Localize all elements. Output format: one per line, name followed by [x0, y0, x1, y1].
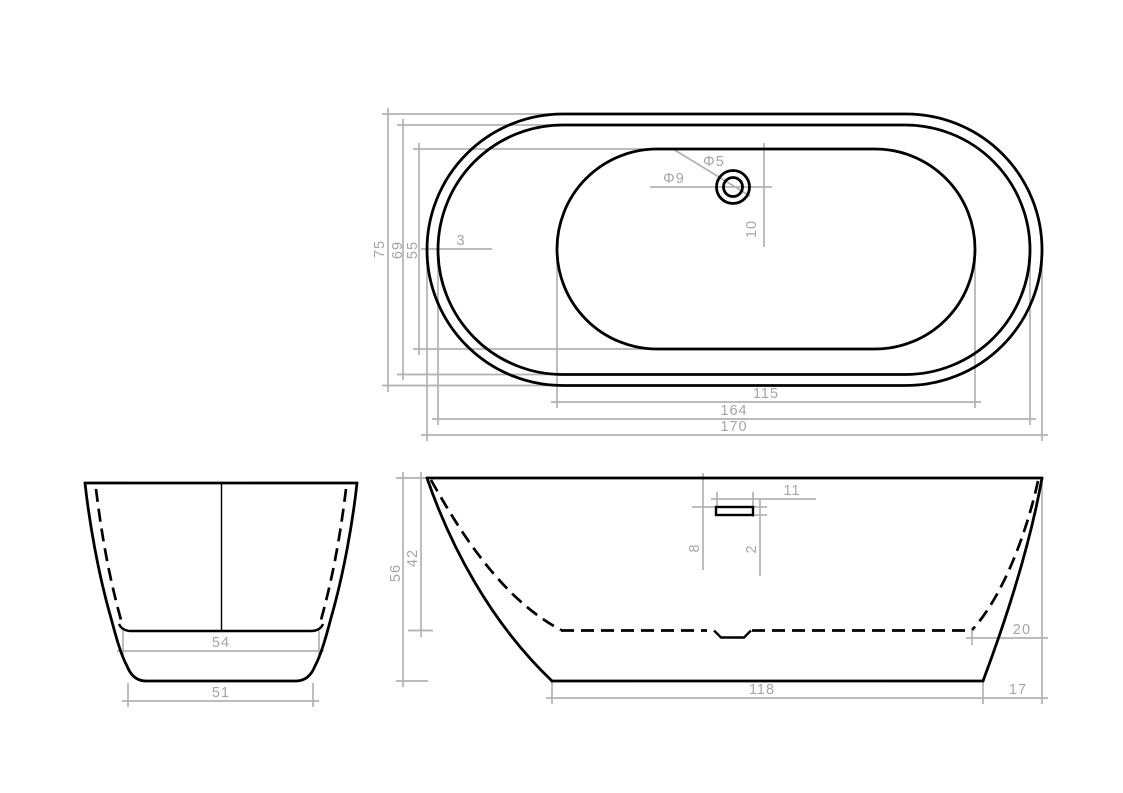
dim-inner-base-end-offset-label: 20 — [1013, 622, 1031, 638]
dim-overall-width-label: 75 — [372, 240, 388, 258]
dim-overflow-height-label: 2 — [744, 544, 760, 553]
dim-drain-inner-diameter-label: Φ5 — [703, 154, 725, 170]
end-view-inner-wall-left-hidden — [96, 489, 121, 620]
overflow-slot — [716, 507, 753, 515]
tub-rim-inner-edge — [438, 125, 1030, 375]
dim-rim-length-label: 164 — [720, 403, 747, 419]
dim-inner-base-width-label: 54 — [212, 635, 230, 651]
drain-recess-notch — [714, 631, 751, 638]
top-view: 75 69 55 3 Φ5 Φ9 10 115 164 170 — [372, 108, 1048, 441]
dim-drain-offset-label: 10 — [744, 220, 760, 238]
drawing-sheet: 75 69 55 3 Φ5 Φ9 10 115 164 170 54 — [0, 0, 1123, 793]
side-view-left-outer-profile — [427, 478, 552, 681]
dim-inner-depth-label: 42 — [405, 549, 421, 567]
dim-wall-thickness-label: 3 — [456, 233, 465, 249]
tub-outer-rim — [427, 114, 1042, 386]
dim-overall-length-label: 170 — [720, 419, 747, 435]
end-view-inner-wall-right-hidden — [321, 489, 346, 620]
side-view-inner-wall-right-hidden — [972, 481, 1038, 630]
end-view: 54 51 — [85, 483, 357, 707]
bathtub-drawing: 75 69 55 3 Φ5 Φ9 10 115 164 170 54 — [0, 0, 1123, 793]
dim-basin-length-label: 115 — [753, 386, 779, 402]
dim-overflow-top-offset-label: 8 — [687, 543, 703, 552]
tub-basin-edge — [557, 149, 975, 349]
dim-rim-width-label: 69 — [390, 241, 406, 259]
dim-base-length-label: 118 — [749, 682, 775, 698]
side-view: 56 42 8 11 2 20 118 17 — [388, 472, 1048, 704]
end-view-dimension-labels: 54 51 — [212, 635, 230, 701]
dim-overflow-length-label: 11 — [783, 483, 800, 499]
dim-base-end-offset-label: 17 — [1009, 682, 1027, 698]
dim-outer-base-width-label: 51 — [212, 685, 230, 701]
side-view-inner-wall-left-hidden — [431, 480, 561, 630]
dim-drain-outer-diameter-label: Φ9 — [663, 171, 685, 187]
dim-basin-width-label: 55 — [405, 241, 421, 259]
dim-overall-height-label: 56 — [388, 564, 404, 582]
side-view-right-outer-profile — [983, 478, 1042, 681]
side-view-dimension-labels: 56 42 8 11 2 20 118 17 — [388, 483, 1031, 698]
